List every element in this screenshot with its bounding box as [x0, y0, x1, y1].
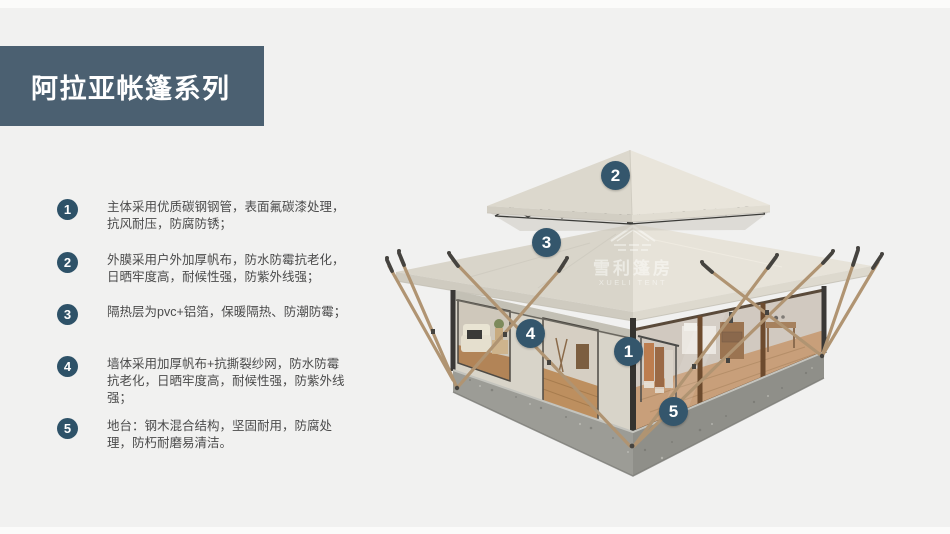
feature-number-badge: 3: [57, 304, 78, 325]
diagram-badge-2: 2: [601, 161, 630, 190]
feature-text: 主体采用优质碳钢钢管，表面氟碳漆处理，抗风耐压，防腐防锈；: [107, 199, 350, 233]
feature-text: 地台：钢木混合结构，坚固耐用，防腐处理，防朽耐磨易清洁。: [107, 418, 350, 452]
slide: 阿拉亚帐篷系列 1 主体采用优质碳钢钢管，表面氟碳漆处理，抗风耐压，防腐防锈； …: [0, 0, 950, 534]
feature-text: 墙体采用加厚帆布+抗撕裂纱网，防水防霉抗老化，日晒牢度高，耐候性强，防紫外线强；: [107, 356, 350, 407]
feature-text: 隔热层为pvc+铝箔，保暖隔热、防潮防霉；: [107, 304, 350, 321]
title-banner: 阿拉亚帐篷系列: [0, 46, 264, 126]
diagram-badge-1: 1: [614, 337, 643, 366]
feature-item-2: 2 外膜采用户外加厚帆布，防水防霉抗老化，日晒牢度高，耐候性强，防紫外线强；: [57, 252, 350, 286]
feature-number-badge: 2: [57, 252, 78, 273]
watermark-en: XUELI TENT: [599, 278, 667, 287]
feature-item-5: 5 地台：钢木混合结构，坚固耐用，防腐处理，防朽耐磨易清洁。: [57, 418, 350, 452]
tent-illustration: 雪利篷房 XUELI TENT: [376, 140, 904, 532]
diagram-badge-4: 4: [516, 319, 545, 348]
feature-number-badge: 4: [57, 356, 78, 377]
feature-number-badge: 1: [57, 199, 78, 220]
feature-text: 外膜采用户外加厚帆布，防水防霉抗老化，日晒牢度高，耐候性强，防紫外线强；: [107, 252, 350, 286]
page-title: 阿拉亚帐篷系列: [31, 67, 231, 106]
feature-item-4: 4 墙体采用加厚帆布+抗撕裂纱网，防水防霉抗老化，日晒牢度高，耐候性强，防紫外线…: [57, 356, 350, 407]
top-roof: [487, 150, 770, 222]
watermark-cn: 雪利篷房: [593, 258, 673, 278]
feature-number-badge: 5: [57, 418, 78, 439]
top-edge-strip: [0, 0, 950, 8]
feature-item-3: 3 隔热层为pvc+铝箔，保暖隔热、防潮防霉；: [57, 304, 350, 325]
feature-item-1: 1 主体采用优质碳钢钢管，表面氟碳漆处理，抗风耐压，防腐防锈；: [57, 199, 350, 233]
diagram-badge-5: 5: [659, 397, 688, 426]
diagram-badge-3: 3: [532, 228, 561, 257]
